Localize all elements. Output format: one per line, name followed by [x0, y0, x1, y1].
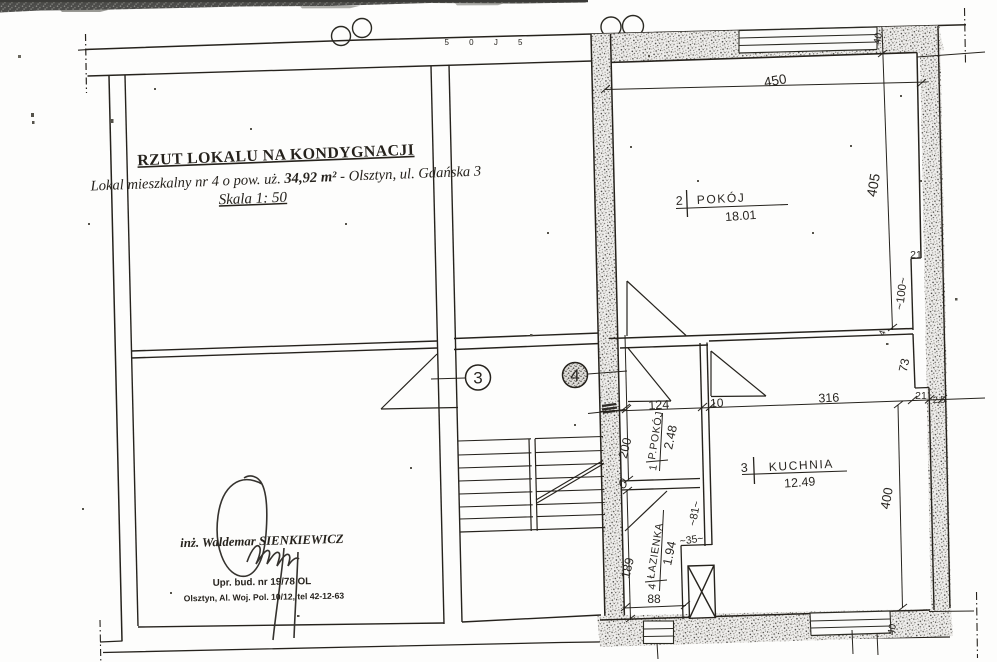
svg-text:400: 400: [877, 486, 896, 510]
svg-text:18.01: 18.01: [725, 208, 757, 224]
svg-text:88: 88: [647, 592, 661, 606]
svg-text:Olsztyn, Al. Woj. Pol. 10/12,: Olsztyn, Al. Woj. Pol. 10/12, tel 42-12-…: [184, 591, 345, 604]
svg-text:RZUT LOKALU NA KONDYGNACJI: RZUT LOKALU NA KONDYGNACJI: [137, 142, 415, 170]
svg-text:21: 21: [910, 249, 922, 261]
svg-text:2.48: 2.48: [661, 424, 680, 451]
svg-text:1.94: 1.94: [660, 540, 679, 567]
svg-text:73: 73: [896, 357, 913, 373]
svg-text:~100~: ~100~: [894, 276, 910, 310]
svg-text:1: 1: [647, 463, 660, 471]
svg-text:4: 4: [646, 582, 659, 590]
svg-text:~81~: ~81~: [687, 500, 703, 527]
svg-text:3: 3: [740, 461, 748, 475]
svg-text:450: 450: [763, 71, 788, 90]
svg-text:4: 4: [570, 366, 579, 385]
svg-text:10: 10: [710, 396, 724, 411]
svg-text:5 0 J 5: 5 0 J 5: [444, 38, 531, 47]
svg-text:POKÓJ: POKÓJ: [696, 189, 745, 207]
svg-text:12.49: 12.49: [784, 474, 816, 490]
svg-text:124: 124: [648, 397, 670, 412]
svg-text:Upr. bud. nr 19/78 OL: Upr. bud. nr 19/78 OL: [213, 576, 312, 589]
svg-text:405: 405: [863, 172, 883, 198]
svg-text:3: 3: [473, 369, 482, 388]
svg-text:inż. Waldemar SIENKIEWICZ: inż. Waldemar SIENKIEWICZ: [180, 532, 344, 550]
svg-text:2: 2: [675, 194, 683, 208]
svg-text:Skala 1: 50: Skala 1: 50: [218, 190, 287, 209]
svg-text:316: 316: [818, 390, 840, 405]
